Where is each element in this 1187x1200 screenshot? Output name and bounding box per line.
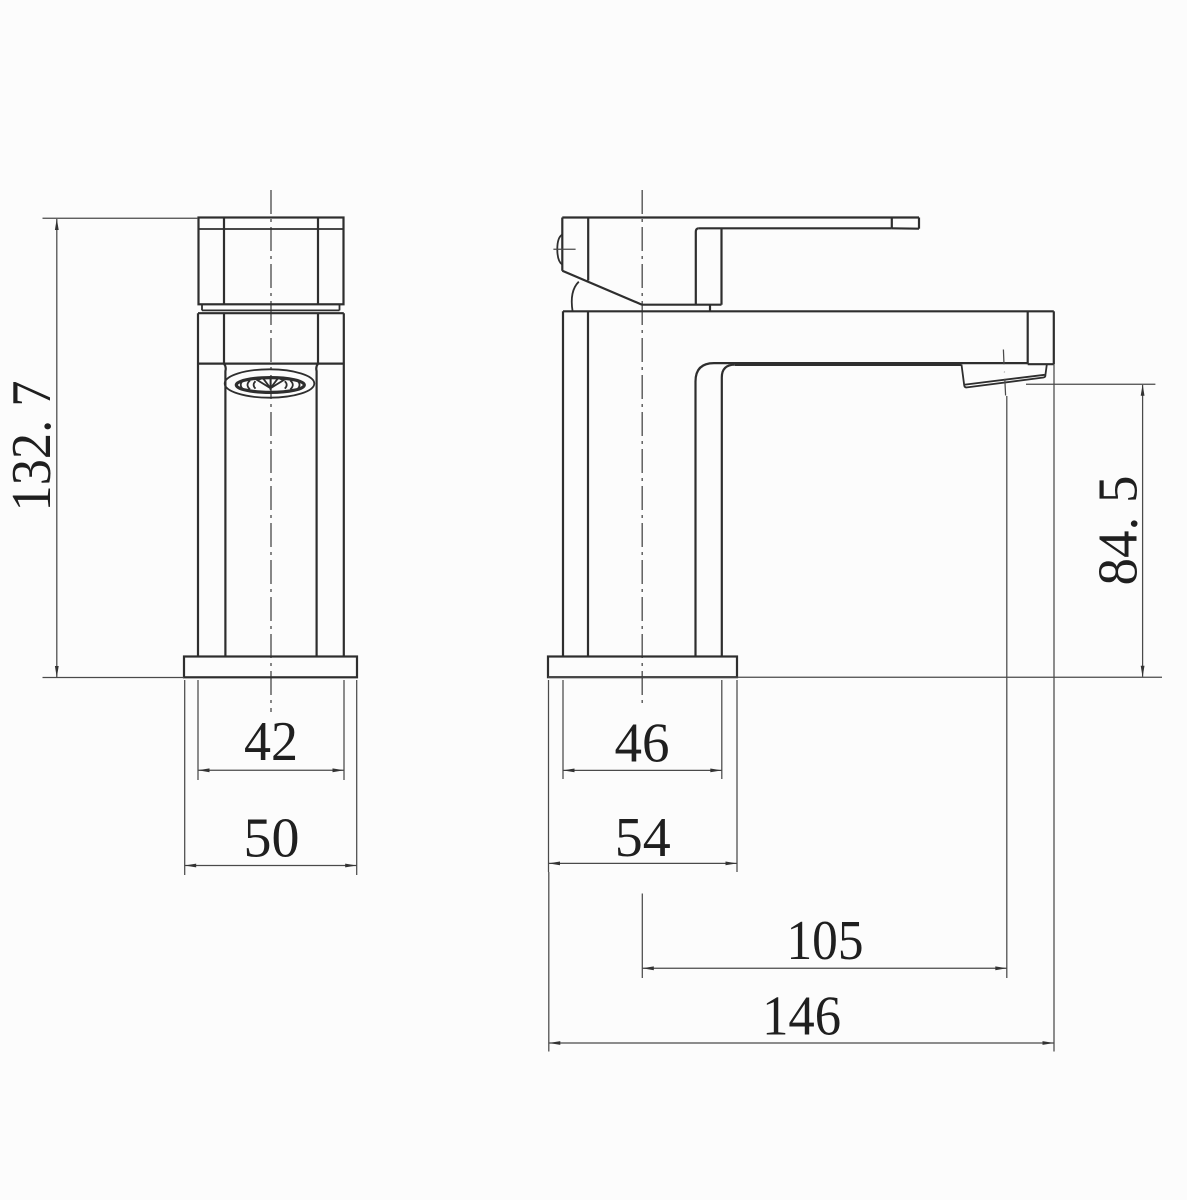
svg-text:46: 46 [615,712,670,774]
svg-text:54: 54 [615,807,671,869]
svg-text:42: 42 [244,711,298,773]
svg-text:105: 105 [787,910,864,972]
svg-text:50: 50 [244,807,300,869]
svg-text:84. 5: 84. 5 [1087,476,1149,586]
svg-text:132. 7: 132. 7 [1,381,63,512]
svg-text:146: 146 [762,986,841,1048]
